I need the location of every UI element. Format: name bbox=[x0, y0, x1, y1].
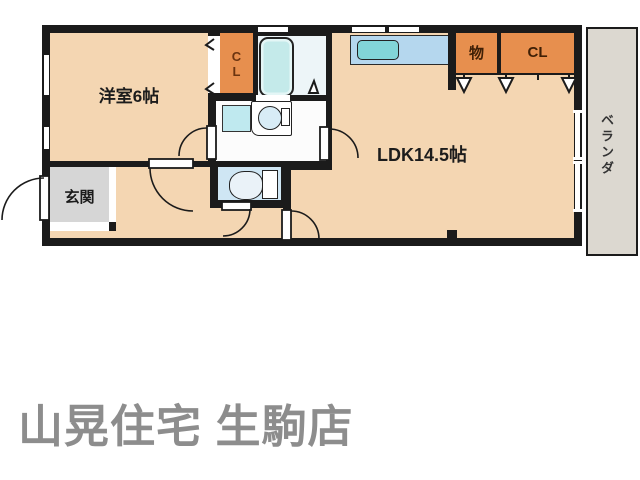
window-balcony-cap-4 bbox=[573, 209, 582, 212]
window-balcony-lower bbox=[575, 163, 580, 210]
closet-wall-stub bbox=[448, 33, 456, 90]
balcony-label: ベランダ bbox=[598, 100, 613, 190]
window-balcony-cap-2 bbox=[573, 157, 582, 160]
toilet-bowl bbox=[229, 171, 263, 200]
washing-machine-pan bbox=[222, 105, 251, 132]
window-balcony-upper bbox=[575, 112, 580, 158]
washbasin-bowl bbox=[258, 106, 282, 130]
entrance-door-arc bbox=[2, 178, 44, 220]
entrance-step bbox=[50, 222, 109, 231]
window-balcony-cap-3 bbox=[573, 161, 582, 164]
hallway-strip-below-entrance bbox=[50, 231, 116, 238]
kitchen-sink bbox=[357, 40, 399, 60]
entrance-label: 玄関 bbox=[50, 189, 109, 206]
closet-ldk-label: CL bbox=[501, 44, 574, 61]
ldk-label: LDK14.5帖 bbox=[337, 145, 507, 166]
floor-plan-page: 洋室6帖 LDK14.5帖 玄関 CL 物 CL ベランダ 山晃住宅 生駒店 bbox=[0, 0, 640, 480]
window-top-kitchen-1 bbox=[352, 27, 385, 32]
window-left-lower bbox=[44, 127, 49, 149]
closet-bedroom-door-strip bbox=[208, 36, 220, 93]
shop-name: 山晃住宅 生駒店 bbox=[18, 390, 618, 455]
washbasin-faucet bbox=[281, 108, 290, 126]
closet-bedroom-label: CL bbox=[228, 41, 243, 87]
storage-label: 物 bbox=[456, 45, 497, 62]
window-left-upper bbox=[44, 55, 49, 95]
toilet-tank bbox=[262, 170, 278, 199]
closet-front-line bbox=[456, 73, 574, 75]
window-top-kitchen-2 bbox=[389, 27, 419, 32]
window-balcony-cap-1 bbox=[573, 110, 582, 113]
western-room-label: 洋室6帖 bbox=[59, 87, 199, 107]
pillar-nub bbox=[447, 230, 457, 238]
room-ldk-lower bbox=[291, 170, 332, 238]
entrance-side-pocket bbox=[109, 167, 116, 222]
window-top-bath bbox=[258, 27, 288, 32]
bathtub bbox=[259, 37, 294, 97]
